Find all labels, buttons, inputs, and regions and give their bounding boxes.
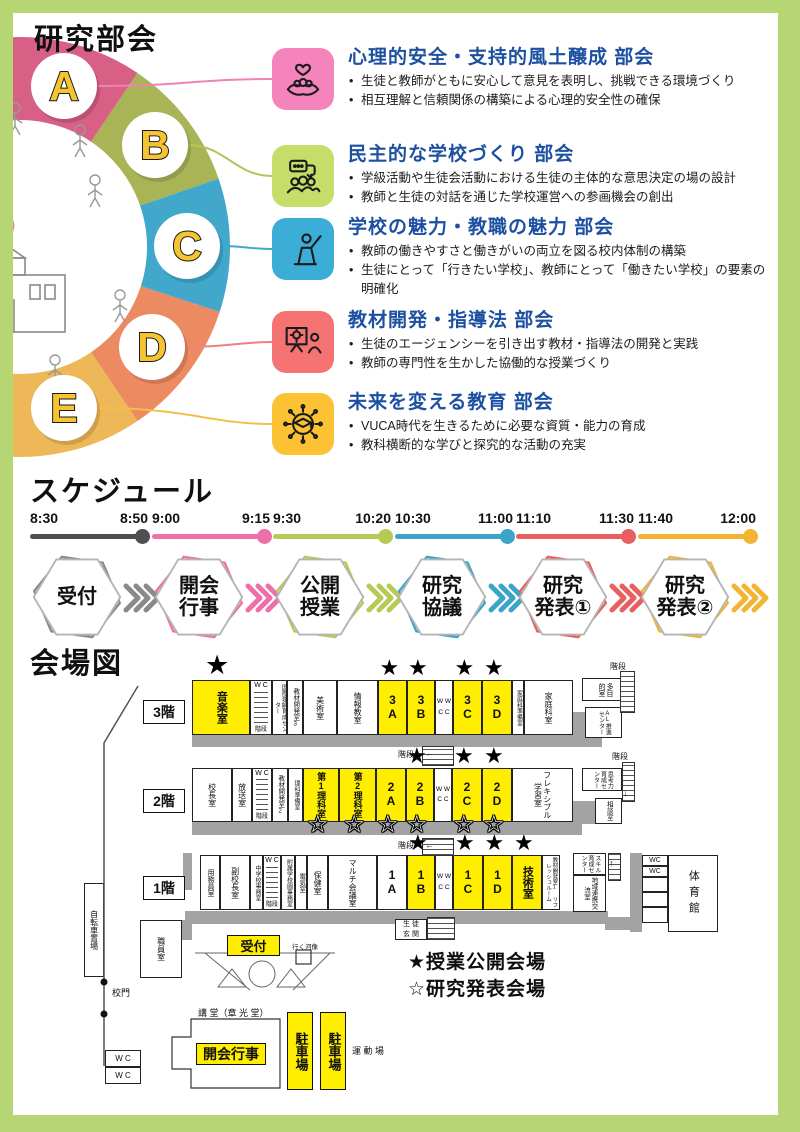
box-生徒玄関: 生 徒 玄 関 [395,919,427,940]
stairs-arrow: ← [425,748,434,758]
box-label: 生 徒 玄 関 [403,920,419,940]
idea-board-icon [272,311,334,373]
room-label: 家庭科準備室 [515,690,522,726]
stairs [427,917,455,940]
timeline-line [395,534,507,539]
wc-label: W C [255,770,269,777]
room-3D: 3 D [482,680,512,735]
room-label: 3 C [463,694,472,722]
map-text: 運 動 場 [352,1044,384,1057]
room-教材開発室2: 教材開発室2 [272,768,288,822]
box-label: 職員室 [156,937,165,961]
stairs-label: 階段 [256,811,268,820]
subcommittee-title: 心理的安全・支持的風土醸成 部会 [348,42,772,69]
frame-bottom [0,1115,800,1132]
subcommittee-bullets: 教師の働きやすさと働きがいの両立を図る校内体制の構築生徒にとって「行きたい学校」… [348,242,772,298]
subcommittee-body: 民主的な学校づくり 部会学級活動や生徒会活動における生徒の主体的な意思決定の場の… [348,139,772,207]
floor-label: 2階 [143,789,185,813]
room-label: 3 B [417,694,426,722]
chevron-arrows [731,583,771,618]
room-label: 2 C [463,781,472,809]
bullet-item: 生徒のエージェンシーを引き出す教材・指導法の開発と実践 [348,335,772,354]
presentation-star: ☆ [377,813,399,837]
room-wc: W W C C [435,680,453,735]
map-text: 講 堂（章 光 堂） [198,1006,269,1019]
room-教材開発室1 リフレッシュルーム: 教材開発室1 リフレッシュルーム [542,855,560,910]
highlight-label: 駐車場 [293,1032,308,1071]
room-label: 家庭科室 [544,692,553,724]
stairs-arrow: ← [425,840,434,850]
empty-box [642,877,668,892]
stage-label: 開会 行事 [151,550,247,644]
time-end: 8:50 [120,510,148,526]
box-WC: WC [642,866,668,877]
room-label: 1 C [464,869,473,897]
room-放送室: 放送室 [232,768,252,822]
wc-label: W C [254,682,268,689]
time-end: 9:15 [242,510,270,526]
room-label: フレキシブル学習室 [533,770,551,820]
box-W C: W C [105,1050,141,1067]
frame-right [778,0,800,1132]
map-text: 行く河像 [292,941,318,951]
bullet-item: 教師の専門性を生かした協働的な授業づくり [348,354,772,373]
box-label: スキル育成センター [579,855,600,873]
timeline-dot [621,529,636,544]
time-start: 9:30 [273,510,301,526]
hands-heart-icon [272,48,334,110]
stage-hexagon-3: 公開 授業 [272,550,368,644]
room-label: 副校長室 [230,867,239,899]
time-start: 11:10 [516,510,551,526]
wc-double-label: W W C C [437,872,451,893]
presentation-star: ☆ [344,813,366,837]
box-label: 多目的室 [597,680,613,699]
timeline-dot [500,529,515,544]
highlight-開会行事: 開会行事 [196,1043,266,1065]
timeline-segment-3: 9:3010:20 [273,510,385,550]
timeline-segment-5: 11:1011:30 [516,510,628,550]
room-中学校事務室: 中学校事務室 [250,855,263,910]
stage-label: 受付 [29,550,125,644]
legend-open-class: ★授業公開会場 [408,950,546,977]
stairs-pattern [266,865,277,898]
discussion-icon [272,145,334,207]
bullet-item: 教師の働きやすさと働きがいの両立を図る校内体制の構築 [348,242,772,261]
stairs-pattern [256,778,269,810]
room-副校長室: 副校長室 [220,855,250,910]
room-label: 技術室 [521,866,534,899]
open-class-star: ★ [514,832,534,854]
corridor [630,853,642,932]
stairs-label: 階段 [612,751,628,762]
open-class-star: ★ [484,745,504,767]
timeline-dot [378,529,393,544]
box-W C: W C [105,1067,141,1084]
box-label: 思考力育成センター [592,770,613,789]
room-電気室: 電気室 [295,855,307,910]
subcommittee-body: 未来を変える教育 部会VUCA時代を生きるために必要な資質・能力の育成教科横断的… [348,387,772,455]
room-附属学校園事務室: 附属学校園事務室 [281,855,295,910]
bullet-item: 生徒にとって「行きたい学校」、教師にとって「働きたい学校」の要素の明確化 [348,261,772,299]
timeline-dot [135,529,150,544]
open-class-star: ★ [485,832,505,854]
highlight-駐車場: 駐車場 [320,1012,346,1090]
box-職員室: 職員室 [140,920,182,978]
room-label: 1 B [417,869,426,897]
room-教材開発室3: 教材開発室3 [287,680,303,735]
map-title: 会場図 [30,640,123,682]
highlight-label: 開会行事 [203,1044,259,1064]
box-AL推進センター: AL推進センター [585,707,622,738]
wc-label: W C [265,857,279,864]
flyer-page: A B C D E 研究部会 心理的安全・支持的風土醸成 部会生徒と教師がともに… [0,0,800,1132]
room-label: 美術室 [315,696,324,720]
subcommittee-body: 心理的安全・支持的風土醸成 部会生徒と教師がともに安心して意見を表明し、挑戦でき… [348,42,772,110]
time-start: 11:40 [638,510,673,526]
box-label: W C [115,1054,131,1063]
wc-double-label: W W C C [437,697,451,718]
box-地域連携交流室: 地域連携交流室 [573,875,606,912]
open-class-star: ★ [407,745,427,767]
map-text: 校門 [112,986,130,999]
open-class-star: ★ [408,657,428,679]
box-相談室: 相談室 [595,798,622,824]
room-情報教室: 情報教室 [337,680,378,735]
room-label: 中学校事務室 [253,865,260,901]
bullet-item: VUCA時代を生きるために必要な資質・能力の育成 [348,417,772,436]
teacher-icon [272,218,334,280]
timeline-line [30,534,142,539]
room-label: 2 D [493,781,502,809]
page-title: 研究部会 [34,16,158,58]
box-label: W C [115,1071,131,1080]
room-label: 校長室 [207,783,216,807]
subcommittee-bullets: 生徒のエージェンシーを引き出す教材・指導法の開発と実践教師の専門性を生かした協働… [348,335,772,373]
room-label: 3 A [388,694,397,722]
subcommittee-bullets: 学級活動や生徒会活動における生徒の主体的な意思決定の場の設計教師と生徒の対話を通… [348,169,772,207]
legend-presentation: ☆研究発表会場 [408,977,546,1004]
timeline-segment-6: 11:4012:00 [638,510,750,550]
timeline-dot [257,529,272,544]
open-class-star: ★ [455,657,475,679]
room-label: 国際理解育成センター [273,682,287,733]
room-label: 放送室 [237,783,246,807]
timeline-line [516,534,628,539]
time-end: 11:00 [478,510,513,526]
room-1D: 1 D [483,855,512,910]
room-美術室: 美術室 [303,680,337,735]
bullet-item: 教師と生徒の対話を通じた学校運営への参画機会の創出 [348,188,772,207]
empty-box [642,907,668,923]
timeline-segment-1: 8:308:50 [30,510,142,550]
room-1B: 1 B [407,855,435,910]
room-マルチ会議室: マルチ会議室 [328,855,377,910]
bullet-item: 相互理解と信頼関係の構築による心理的安全性の確保 [348,91,772,110]
stage-label: 公開 授業 [272,550,368,644]
box-思考力育成センター: 思考力育成センター [582,768,622,791]
room-label: 2 B [416,781,425,809]
stage-hexagon-1: 受付 [29,550,125,644]
bullet-item: 教科横断的な学びと探究的な活動の充実 [348,436,772,455]
stairs [620,671,635,713]
room-wc: W W C C [434,768,452,822]
box-label: WC [649,857,661,864]
box-自転車置場: 自転車置場 [84,883,104,977]
room-1A: 1 A [377,855,407,910]
timeline-dot [743,529,758,544]
map-legend: ★授業公開会場 ☆研究発表会場 [408,950,546,1003]
room-label: 教材開発室2 [276,775,283,815]
room-保健室: 保健室 [307,855,328,910]
box-label: 相談室 [605,801,612,821]
room-国際理解育成センター: 国際理解育成センター [272,680,287,735]
open-class-star: ★ [484,657,504,679]
room-label: 理科準備室 [292,780,299,810]
stairs-pattern [254,690,268,723]
timeline-line [638,534,750,539]
stairs-label: 階段 [255,724,267,733]
room-用務員室: 用務員室 [200,855,220,910]
room-label: 保健室 [313,871,322,895]
room-label: 情報教室 [353,692,362,724]
room-家庭科室: 家庭科室 [524,680,573,735]
room-label: 附属学校園事務室 [285,859,292,907]
schedule-title: スケジュール [30,468,214,510]
presentation-star: ☆ [307,813,329,837]
future-education-icon [272,393,334,455]
room-音楽室: 音楽室 [192,680,250,735]
room-1C: 1 C [453,855,483,910]
timeline-line [273,534,385,539]
room-3C: 3 C [453,680,482,735]
stairs-arrow: ↑ [609,858,614,868]
highlight-受付: 受付 [227,935,280,956]
highlight-label: 受付 [240,936,266,955]
room-label: 1 A [388,869,397,897]
subcommittee-body: 教材開発・指導法 部会生徒のエージェンシーを引き出す教材・指導法の開発と実践教師… [348,305,772,373]
room-label: 2 A [387,781,396,809]
frame-left [0,0,13,1132]
box-体育館: 体育館 [668,855,718,932]
room-3B: 3 B [407,680,435,735]
frame-top [0,0,800,13]
stairs-label: 階段 [266,899,278,908]
room-技術室: 技術室 [512,855,542,910]
box-label: AL推進センター [597,709,611,736]
subcommittee-bullets: VUCA時代を生きるために必要な資質・能力の育成教科横断的な学びと探究的な活動の… [348,417,772,455]
subcommittee-title: 学校の魅力・教職の魅力 部会 [348,212,772,239]
room-フレキシブル学習室: フレキシブル学習室 [512,768,573,822]
room-label: 教材開発室1 リフレッシュルーム [545,857,558,908]
floor-label: 1階 [143,876,185,900]
stage-hexagon-6: 研究 発表② [637,550,733,644]
room-label: 用務員室 [206,869,214,897]
subcommittee-body: 学校の魅力・教職の魅力 部会教師の働きやすさと働きがいの両立を図る校内体制の構築… [348,212,772,298]
corridor [192,735,573,747]
empty-box [642,892,668,907]
room-label: 1 D [493,869,502,897]
box-label: 自転車置場 [89,910,98,950]
box-スキル育成センター: スキル育成センター [573,853,606,875]
time-end: 11:30 [599,510,634,526]
room-3A: 3 A [378,680,407,735]
stairs-arrow: ↓ [623,788,628,798]
room-label: 音楽室 [215,691,228,724]
time-start: 10:30 [395,510,431,526]
room-wc: W C階段 [252,768,272,822]
room-理科準備室: 理科準備室 [288,768,303,822]
time-start: 9:00 [152,510,180,526]
timeline-segment-2: 9:009:15 [152,510,264,550]
open-class-star: ★ [454,745,474,767]
timeline-segment-4: 10:3011:00 [395,510,507,550]
bullet-item: 生徒と教師がともに安心して意見を表明し、挑戦できる環境づくり [348,72,772,91]
subcommittee-bullets: 生徒と教師がともに安心して意見を表明し、挑戦できる環境づくり相互理解と信頼関係の… [348,72,772,110]
time-start: 8:30 [30,510,58,526]
box-label: 地域連携交流室 [582,877,597,910]
room-家庭科準備室: 家庭科準備室 [512,680,524,735]
timeline-line [152,534,264,539]
room-校長室: 校長室 [192,768,232,822]
box-WC: WC [642,855,668,866]
subcommittee-title: 民主的な学校づくり 部会 [348,139,772,166]
stairs-label: 階段 [610,661,626,672]
time-end: 10:20 [355,510,391,526]
subcommittee-title: 未来を変える教育 部会 [348,387,772,414]
room-wc: W C階段 [250,680,272,735]
stage-label: 研究 発表② [637,550,733,644]
stage-hexagon-4: 研究 協議 [394,550,490,644]
box-label: WC [649,868,661,875]
room-label: 電気室 [297,873,304,893]
box-label: 体育館 [687,870,700,918]
highlight-駐車場: 駐車場 [287,1012,313,1090]
wc-double-label: W W C C [436,785,450,806]
floor-label: 3階 [143,700,185,724]
subcommittee-title: 教材開発・指導法 部会 [348,305,772,332]
open-class-star: ★ [380,657,400,679]
stage-label: 研究 協議 [394,550,490,644]
room-label: 教材開発室3 [291,688,298,728]
stage-hexagon-2: 開会 行事 [151,550,247,644]
room-label: マルチ会議室 [348,859,357,907]
highlight-label: 駐車場 [326,1032,341,1071]
open-class-star: ★ [205,652,229,679]
open-class-star: ★ [455,832,475,854]
room-label: 3 D [493,694,502,722]
time-end: 12:00 [720,510,756,526]
bullet-item: 学級活動や生徒会活動における生徒の主体的な意思決定の場の設計 [348,169,772,188]
stage-label: 研究 発表① [515,550,611,644]
stage-hexagon-5: 研究 発表① [515,550,611,644]
room-wc: W C階段 [263,855,281,910]
room-wc: W W C C [435,855,453,910]
